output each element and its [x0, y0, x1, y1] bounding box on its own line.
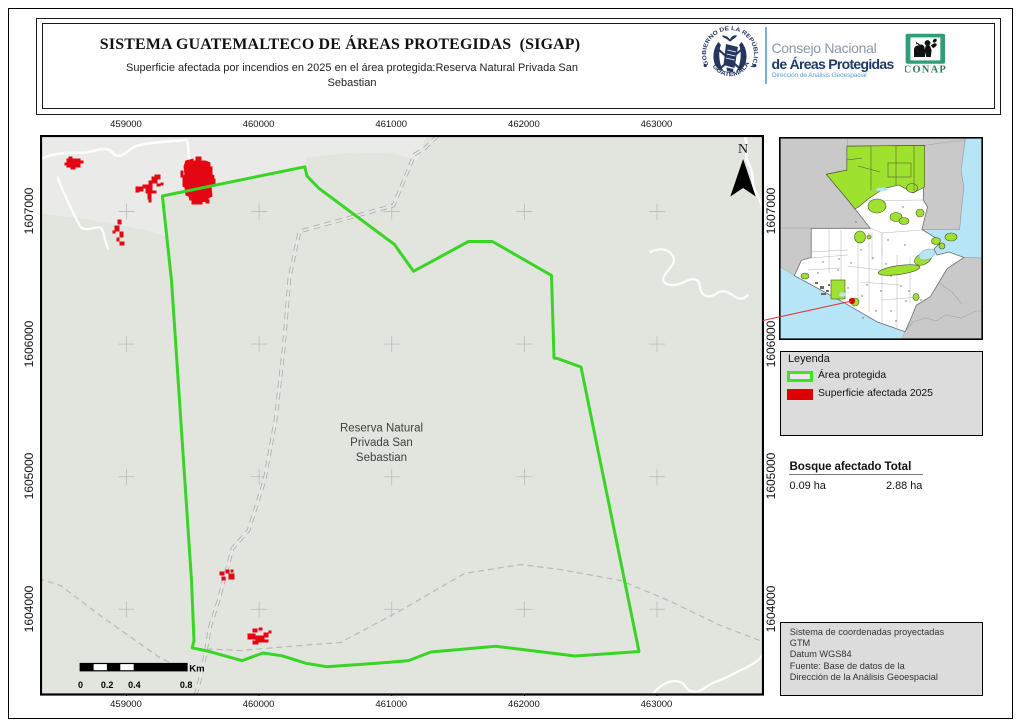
svg-text:Privada San: Privada San: [350, 437, 413, 449]
svg-text:CONAP: CONAP: [905, 65, 947, 75]
svg-text:Reserva Natural: Reserva Natural: [339, 422, 422, 434]
svg-text:0.4: 0.4: [128, 680, 141, 690]
svg-text:Sebastian: Sebastian: [355, 451, 406, 463]
svg-text:0.2: 0.2: [100, 680, 113, 690]
svg-text:0.8: 0.8: [179, 680, 192, 690]
svg-text:Km: Km: [189, 663, 204, 674]
svg-text:0: 0: [77, 680, 82, 690]
svg-text:N: N: [737, 142, 747, 157]
